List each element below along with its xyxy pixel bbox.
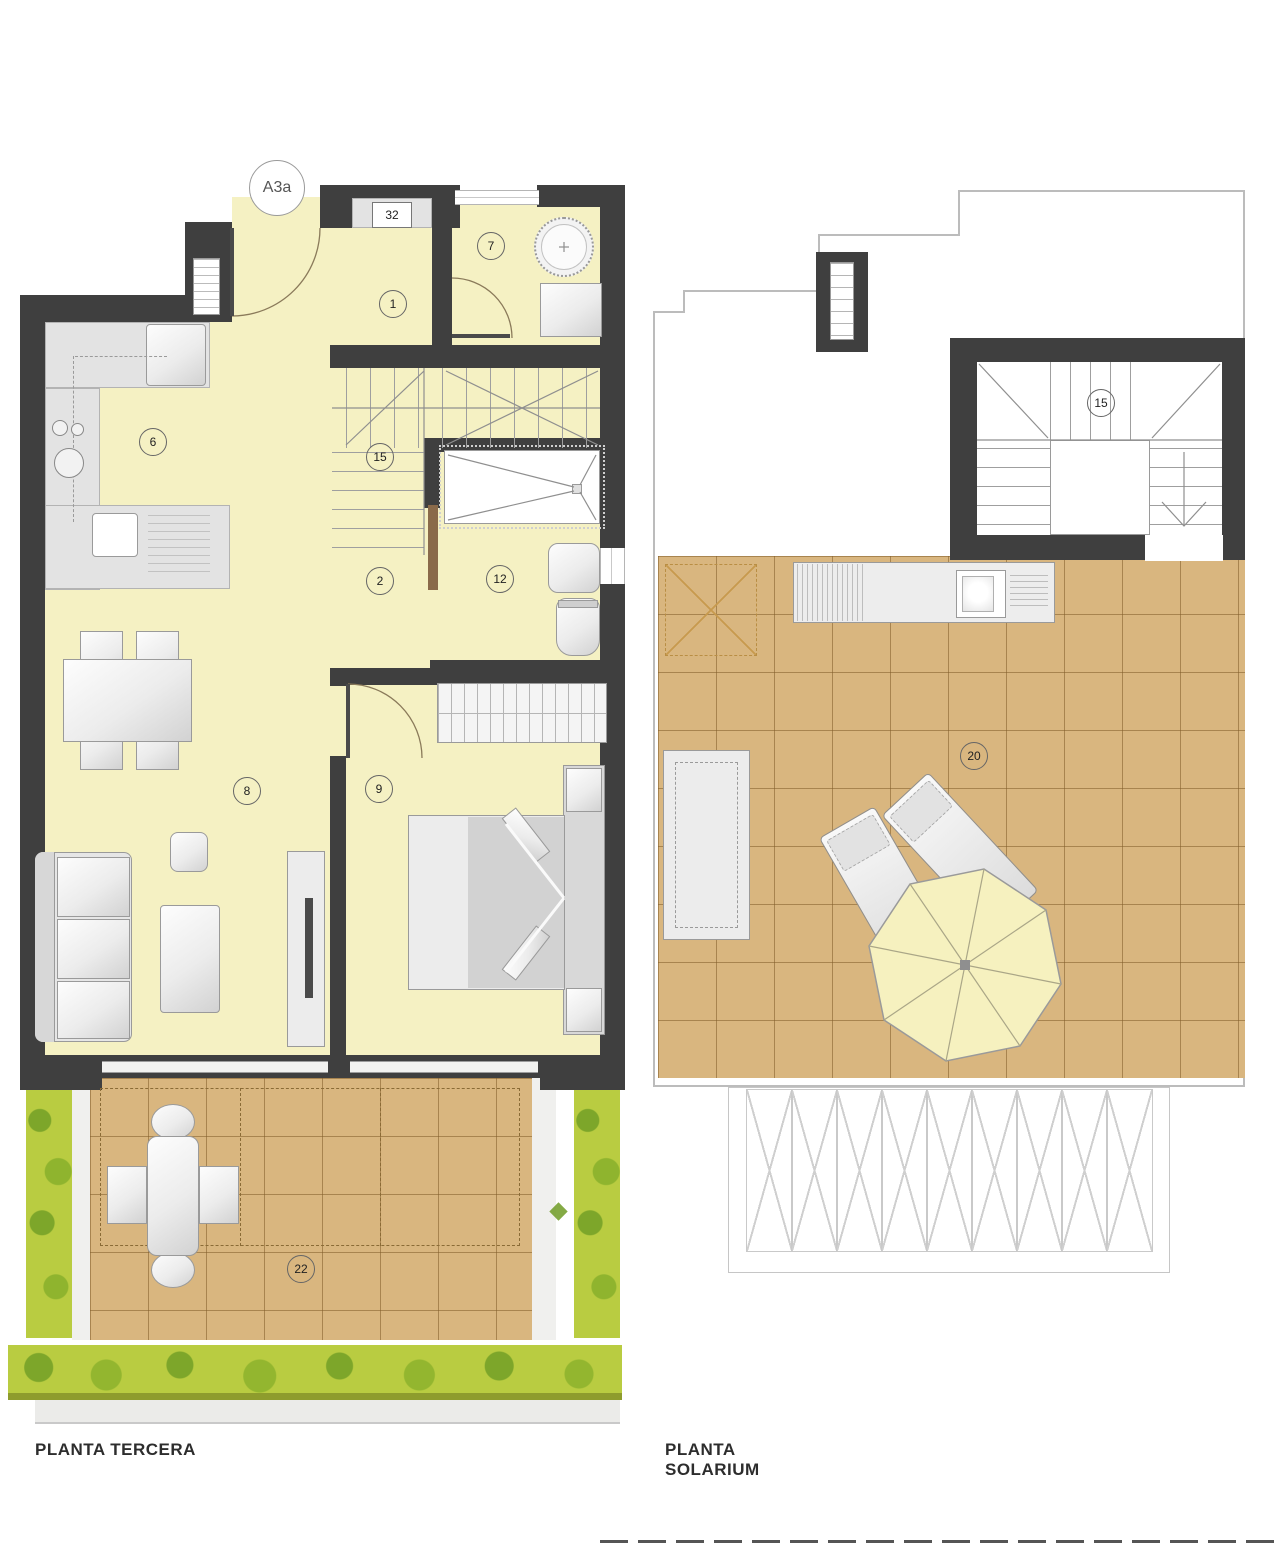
upper-cabinet-dashed <box>73 356 74 522</box>
toilet-tank <box>558 600 598 608</box>
wall-stairs-bath-divider <box>424 440 440 508</box>
dining-table <box>63 659 192 742</box>
roof-outline <box>683 290 820 292</box>
plan-title-tercera: PLANTA TERCERA <box>35 1440 196 1460</box>
nightstand <box>566 988 602 1032</box>
hob-burner <box>54 448 84 478</box>
pergola-panel <box>1016 1089 1063 1252</box>
window-bathroom-top <box>455 190 539 205</box>
kitchen-sink <box>92 513 138 557</box>
pergola-panel <box>791 1089 838 1252</box>
room-label-stairwell: 15 <box>1087 389 1115 417</box>
side-table <box>170 832 208 872</box>
pergola-panel <box>1061 1089 1108 1252</box>
pergola-dashed-line <box>240 1088 241 1246</box>
roof-outline <box>683 290 685 313</box>
bathroom-top-sink <box>540 283 602 337</box>
wall-left-horizontal <box>20 295 190 322</box>
sofa-back <box>35 852 55 1042</box>
wall-bottom-center-stub <box>330 1055 348 1078</box>
bathroom-main-sink <box>548 543 600 593</box>
pergola-panel <box>926 1089 973 1252</box>
wardrobe <box>437 683 607 743</box>
wall-partition <box>330 756 346 1060</box>
stairwell-void <box>1050 440 1150 535</box>
planter-right <box>574 1082 620 1338</box>
stairwell-flight-left <box>977 448 1050 535</box>
terrace-walkway-left <box>72 1078 90 1340</box>
room-label-stairs: 15 <box>366 443 394 471</box>
room-label-living: 8 <box>233 777 261 805</box>
pergola-panel <box>746 1089 793 1252</box>
room-label-solarium: 20 <box>960 742 988 770</box>
nightstand <box>566 768 602 812</box>
plan-title-solarium: PLANTA SOLARIUM <box>665 1440 760 1480</box>
roof-outline <box>653 311 655 1087</box>
room-label-hallway: 1 <box>379 290 407 318</box>
hob-burner <box>52 420 68 436</box>
floor-plan-sheet: A3a 32 7 1 6 15 2 12 8 9 22 PLANTA TERCE… <box>0 0 1280 1547</box>
coffee-table <box>160 905 220 1013</box>
door-leaf-bath-main <box>428 505 438 590</box>
sofa-cushion <box>57 857 130 917</box>
window-right-wall <box>600 548 625 584</box>
terrace-chair <box>107 1166 147 1224</box>
stairwell-opening <box>1145 535 1223 561</box>
tv-screen <box>305 898 313 998</box>
pergola-panel <box>971 1089 1018 1252</box>
pergola-dashed-line <box>380 1088 381 1246</box>
sofa-cushion <box>57 919 130 979</box>
walk-path <box>35 1400 620 1424</box>
parasol-umbrella <box>863 863 1067 1067</box>
hedge-border <box>8 1393 622 1400</box>
planter-left <box>26 1082 72 1338</box>
outdoor-sink-bowl <box>962 576 994 612</box>
terrace-chair <box>199 1166 239 1224</box>
fridge <box>146 324 206 386</box>
wall-hall-bath-divider <box>432 197 452 345</box>
room-label-closet: 32 <box>372 202 412 228</box>
kitchen-drainer <box>148 515 210 579</box>
room-label-terrace: 22 <box>287 1255 315 1283</box>
roof-outline <box>958 190 1245 192</box>
outdoor-kitchen-slats <box>797 564 867 621</box>
wall-bottom-right-stub <box>540 1055 625 1090</box>
upper-cabinet-dashed <box>75 356 167 357</box>
sliding-door-right <box>350 1061 538 1073</box>
terrace-chair <box>151 1252 195 1288</box>
roof-outline <box>653 311 685 313</box>
garden-hedge <box>8 1345 622 1395</box>
solarium-bench-cushion <box>675 762 738 928</box>
room-label-kitchen: 6 <box>139 428 167 456</box>
pergola-panel <box>1106 1089 1153 1252</box>
room-label-distributor: 2 <box>366 567 394 595</box>
meter-cabinet <box>193 258 220 315</box>
skylight-dashed <box>665 564 757 656</box>
terrace-table <box>147 1136 199 1256</box>
hob-burner <box>71 423 84 436</box>
terrace-chair <box>151 1104 195 1140</box>
wall-stairs-top <box>330 345 625 368</box>
unit-badge: A3a <box>249 160 305 216</box>
outdoor-grill-vents <box>1010 575 1048 609</box>
wall-partition-stub <box>330 668 346 686</box>
sofa-cushion <box>57 981 130 1039</box>
room-label-bedroom: 9 <box>365 775 393 803</box>
room-label-bathroom-main: 12 <box>486 565 514 593</box>
roof-outline <box>958 190 960 236</box>
chimney-flue <box>830 262 854 340</box>
room-label-bathroom-top: 7 <box>477 232 505 260</box>
pergola-panel <box>881 1089 928 1252</box>
shower-drain <box>572 484 582 494</box>
wall-bottom-left-stub <box>20 1055 102 1090</box>
roof-outline <box>818 234 960 236</box>
sliding-door-left <box>102 1061 328 1073</box>
stairwell-flight-right <box>1150 448 1222 535</box>
pergola-panel <box>836 1089 883 1252</box>
stair-upper-flight <box>346 368 600 448</box>
sheet-edge-line <box>600 1540 1280 1543</box>
shower-round-inner <box>541 224 587 270</box>
